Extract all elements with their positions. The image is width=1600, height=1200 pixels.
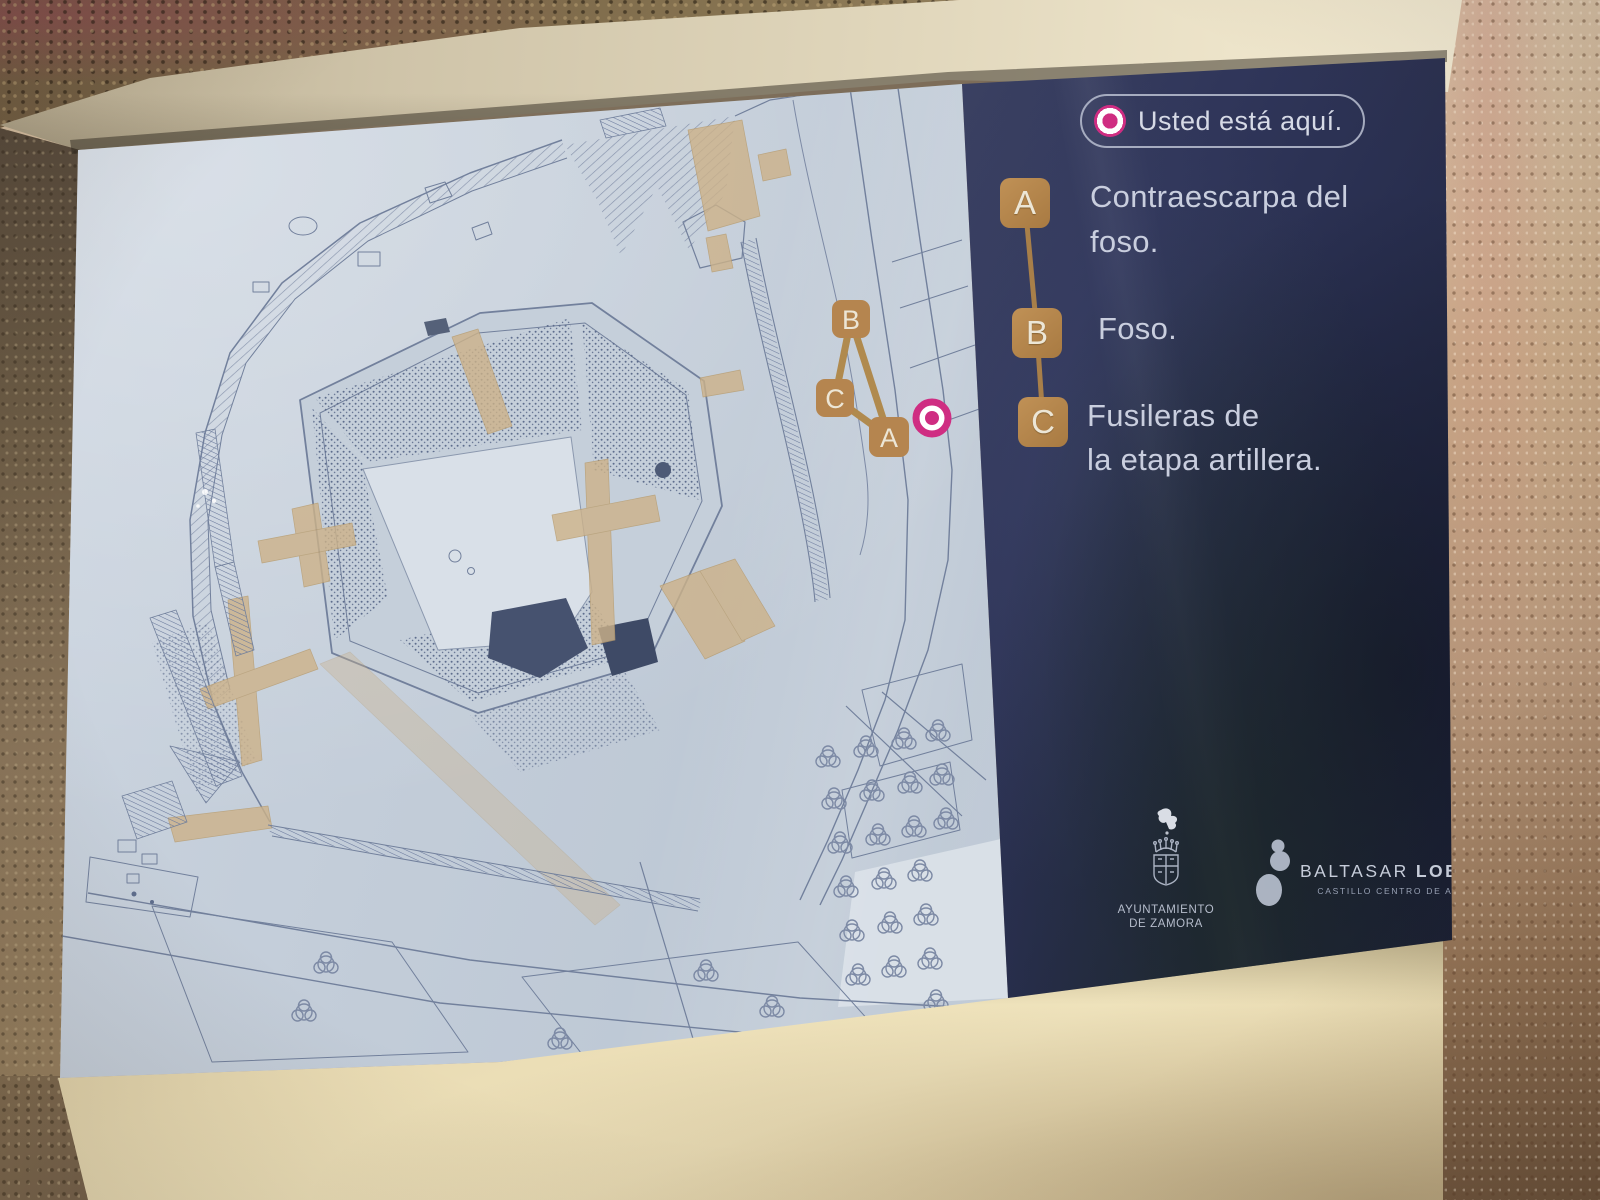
map-marker-C-letter: C: [825, 384, 845, 414]
legend-badge-b: B: [1012, 308, 1062, 358]
you-are-here-pill: Usted está aquí.: [1080, 94, 1365, 148]
map-marker-A: A: [869, 417, 909, 457]
legend-label-b: Foso.: [1098, 306, 1177, 351]
map-route-markers: B C A: [816, 300, 948, 457]
legend-badge-a-letter: A: [1014, 184, 1036, 222]
baltasar-name-first: BALTASAR: [1300, 861, 1409, 881]
photo-of-castle-map-sign: B C A Usted es: [0, 0, 1600, 1200]
map-marker-B: B: [832, 300, 870, 338]
legend-label-c: Fusileras de la etapa artillera.: [1087, 394, 1322, 482]
baltasar-lobo-circles-icon: [1252, 834, 1292, 912]
map-marker-A-letter: A: [880, 423, 898, 453]
baltasar-lobo-logo: BALTASARLOBO CASTILLO CENTRO DE ARTE: [1252, 834, 1476, 912]
site-plan: [62, 88, 1008, 1080]
ayuntamiento-label: AYUNTAMIENTO DE ZAMORA: [1118, 904, 1215, 931]
map-marker-B-letter: B: [842, 305, 860, 335]
map-marker-C: C: [816, 379, 854, 417]
legend-badge-c-letter: C: [1031, 403, 1055, 441]
legend-label-a: Contraescarpa del foso.: [1090, 174, 1348, 264]
legend-badge-a: A: [1000, 178, 1050, 228]
legend-panel: Usted está aquí. A Contraescarpa del fos…: [940, 50, 1460, 1010]
ayuntamiento-crest-icon: [1139, 806, 1193, 902]
legend-badge-b-letter: B: [1026, 314, 1048, 352]
stone-wall-background: [1438, 0, 1600, 1200]
ayuntamiento-zamora-logo: AYUNTAMIENTO DE ZAMORA: [1108, 806, 1224, 931]
you-are-here-label: Usted está aquí.: [1138, 106, 1343, 137]
legend-badge-c: C: [1018, 397, 1068, 447]
baltasar-lobo-text: BALTASARLOBO CASTILLO CENTRO DE ARTE: [1300, 861, 1476, 896]
you-are-here-icon: [1094, 105, 1126, 137]
baltasar-lobo-name: BALTASARLOBO: [1300, 861, 1476, 882]
you-are-here-map-marker: [916, 402, 948, 434]
baltasar-lobo-subtitle: CASTILLO CENTRO DE ARTE: [1300, 886, 1476, 896]
